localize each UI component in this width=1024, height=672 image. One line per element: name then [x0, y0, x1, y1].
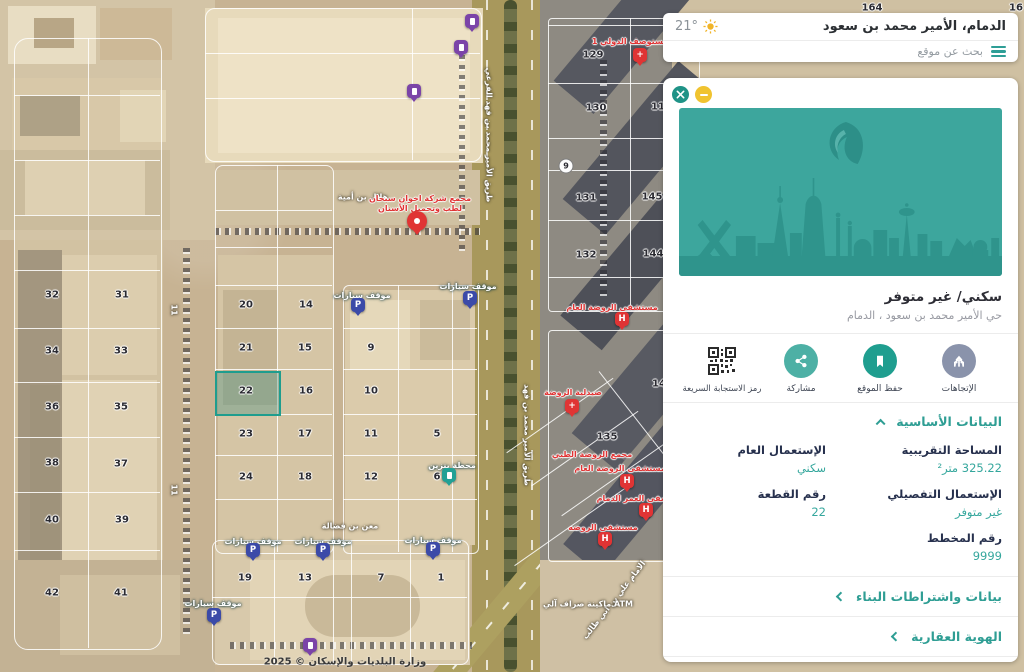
map-copyright: وزارة البلديات والإسكان © 2025	[264, 657, 427, 668]
save-location-button[interactable]: حفظ الموقع	[845, 344, 915, 394]
parcel-number[interactable]: 39	[115, 515, 129, 526]
action-label: رمز الاستجابة السريعة	[683, 384, 762, 394]
field-label: رقم المخطط	[826, 531, 1002, 545]
section-title: الهوية العقارية	[911, 629, 1002, 644]
parcel-number[interactable]: 129	[583, 50, 604, 61]
parcel-grid-line	[14, 382, 160, 383]
field-label: الإستعمال التفصيلي	[826, 487, 1002, 501]
field-1: الإستعمال العامسكني	[679, 443, 826, 475]
highway-median-trees	[504, 0, 517, 672]
menu-icon[interactable]	[991, 44, 1006, 60]
parcel-grid-line	[333, 540, 334, 663]
minimize-button[interactable]	[695, 86, 712, 103]
parcel-number[interactable]: 145	[642, 192, 663, 203]
parcel-number[interactable]: 40	[45, 515, 59, 526]
parcel-grid-line	[215, 285, 332, 286]
parcel-number[interactable]: 1	[438, 573, 445, 584]
parcel-grid-line	[212, 597, 467, 598]
purple-pin[interactable]	[465, 14, 479, 28]
qr-code-icon	[705, 344, 739, 378]
field-value: سكني	[679, 461, 826, 475]
basic-data-section-header[interactable]: البيانات الأساسية	[663, 403, 1018, 433]
parcel-detail-panel: سكني/ غير متوفر حي الأمير محمد بن سعود ،…	[663, 78, 1018, 662]
parcel-number[interactable]: 12	[364, 472, 378, 483]
parking-pin[interactable]: P	[246, 543, 260, 557]
parcel-number[interactable]: 10	[364, 386, 378, 397]
parcel-number[interactable]: 31	[115, 290, 129, 301]
section-row-1[interactable]: الهوية العقارية	[663, 617, 1018, 656]
parcel-subtitle: حي الأمير محمد بن سعود ، الدمام	[679, 309, 1002, 322]
parcel-number[interactable]: 35	[114, 402, 128, 413]
action-label: الإتجاهات	[942, 384, 977, 394]
parcel-grid-line	[398, 285, 399, 552]
parcel-grid-line	[215, 499, 332, 500]
parcel-number[interactable]: 6	[434, 472, 441, 483]
parked-cars	[183, 248, 190, 638]
parcel-number[interactable]: 19	[238, 573, 252, 584]
parcel-number[interactable]: 9	[559, 159, 574, 174]
parcel-grid-line	[452, 285, 453, 552]
parcel-number[interactable]: 14	[299, 300, 313, 311]
action-label: مشاركة	[786, 384, 815, 394]
weather-widget: 21°	[675, 19, 718, 34]
hospital-pin[interactable]: H	[615, 312, 629, 326]
street-label: 11	[170, 304, 179, 315]
parcel-number[interactable]: 23	[239, 429, 253, 440]
field-4: رقم المخطط9999	[826, 531, 1002, 563]
parcel-number[interactable]: 15	[298, 343, 312, 354]
parcel-number[interactable]: 11	[364, 429, 378, 440]
app-screen: 1641612913011913114513214414135323134333…	[0, 0, 1024, 672]
parcel-grid-line	[343, 414, 477, 415]
parcel-grid-line	[215, 210, 332, 211]
parcel-number[interactable]: 42	[45, 588, 59, 599]
parcel-grid-line	[215, 328, 332, 329]
temperature-label: 21°	[675, 19, 698, 34]
parcel-grid-line	[14, 215, 160, 216]
parking-pin[interactable]: P	[426, 542, 440, 556]
parcel-grid-line	[14, 437, 160, 438]
poi-label: المستوصف الدولي 1	[592, 37, 674, 47]
close-button[interactable]	[672, 86, 689, 103]
pharmacy-pin[interactable]: +	[565, 399, 579, 413]
parcel-number[interactable]: 20	[239, 300, 253, 311]
poi-label: صيدلية الروضة	[544, 388, 602, 398]
parcel-number[interactable]: 32	[45, 290, 59, 301]
parcel-number[interactable]: 9	[368, 343, 375, 354]
chevron-left-icon	[835, 591, 845, 601]
chevron-up-icon	[876, 418, 886, 428]
parking-pin[interactable]: P	[316, 543, 330, 557]
close-icon	[676, 90, 685, 99]
parcel-grid-line	[215, 247, 332, 248]
purple-pin[interactable]	[454, 40, 468, 54]
purple-pin[interactable]	[407, 84, 421, 98]
qr-code-button[interactable]: رمز الاستجابة السريعة	[687, 344, 757, 394]
search-input[interactable]: بحث عن موقع	[917, 45, 983, 58]
street-label: معن بن فضالة	[322, 522, 378, 531]
parcel-number[interactable]: 132	[576, 250, 597, 261]
gas-pin[interactable]	[442, 468, 456, 482]
parcel-grid-line	[205, 98, 480, 99]
directions-button[interactable]: الإتجاهات	[924, 344, 994, 394]
parking-pin[interactable]: P	[351, 298, 365, 312]
parcel-grid-line	[343, 369, 477, 370]
parcel-grid-line	[14, 95, 160, 96]
field-label: المساحة التقريبية	[826, 443, 1002, 457]
parcel-grid-line	[205, 53, 480, 54]
hospital-pin[interactable]: H	[598, 532, 612, 546]
poi-label: مستشفى الروضة العام	[566, 303, 657, 313]
collapsed-sections: بيانات واشتراطات البناءالهوية العقاريةأق…	[663, 577, 1018, 662]
parcel-block-outline	[215, 165, 334, 554]
action-label: حفظ الموقع	[857, 384, 903, 394]
parcel-title: سكني/ غير متوفر	[679, 289, 1002, 305]
parcel-grid-line	[410, 540, 411, 663]
parcel-grid-line	[14, 492, 160, 493]
sun-icon	[703, 19, 718, 34]
parcel-grid-line	[14, 328, 160, 329]
location-title: الدمام، الأمير محمد بن سعود	[823, 19, 1006, 34]
parcel-number[interactable]: 38	[45, 458, 59, 469]
parcel-number[interactable]: 37	[114, 459, 128, 470]
parcel-number[interactable]: 131	[576, 193, 597, 204]
parcel-grid-line	[277, 165, 278, 552]
parcel-number[interactable]: 16	[299, 386, 313, 397]
parcel-number[interactable]: 41	[114, 588, 128, 599]
search-card: 21° الدمام، الأمير محمد بن سعود بحث عن م…	[663, 13, 1018, 62]
field-value: 9999	[826, 549, 1002, 563]
parcel-block-outline	[343, 285, 479, 554]
parcel-grid-line	[88, 38, 89, 648]
purple-pin[interactable]	[303, 638, 317, 652]
section-row-0[interactable]: بيانات واشتراطات البناء	[663, 577, 1018, 616]
parcel-grid-line	[343, 455, 477, 456]
hospital-pin[interactable]: H	[620, 474, 634, 488]
parcel-number[interactable]: 33	[114, 346, 128, 357]
parcel-number[interactable]: 24	[239, 472, 253, 483]
field-label: رقم القطعة	[679, 487, 826, 501]
parcel-number[interactable]: 17	[298, 429, 312, 440]
dental-pin[interactable]	[407, 211, 427, 231]
field-value: غير متوفر	[826, 505, 1002, 519]
parcel-number[interactable]: 130	[586, 103, 607, 114]
field-3: رقم القطعة22	[679, 487, 826, 519]
field-value: 325.22 متر²	[826, 461, 1002, 475]
hospital-pin[interactable]: H	[639, 503, 653, 517]
parcel-grid-line	[215, 455, 332, 456]
parcel-number[interactable]: 7	[378, 573, 385, 584]
bookmark-icon	[863, 344, 897, 378]
action-bar: الإتجاهات حفظ الموقع مشاركة	[663, 334, 1018, 400]
parcel-block-outline	[205, 8, 482, 162]
search-bar[interactable]: بحث عن موقع	[663, 41, 1018, 62]
street-label: طريق الأمير محمد بن فهد	[523, 384, 532, 486]
poi-label: مستشفى الروضة العام	[574, 464, 665, 474]
field-2: الإستعمال التفصيليغير متوفر	[826, 487, 1002, 519]
chevron-left-icon	[890, 631, 900, 641]
section-title: بيانات واشتراطات البناء	[856, 589, 1002, 604]
parcel-number[interactable]: 164	[862, 3, 883, 14]
map-building	[540, 560, 680, 672]
field-0: المساحة التقريبية325.22 متر²	[826, 443, 1002, 475]
parcel-grid-line	[351, 540, 352, 663]
parcel-number[interactable]: 21	[239, 343, 253, 354]
parcel-grid-line	[14, 160, 160, 161]
parcel-number[interactable]: 16	[1009, 3, 1023, 14]
parcel-grid-line	[343, 328, 477, 329]
share-button[interactable]: مشاركة	[766, 344, 836, 394]
parcel-grid-line	[274, 540, 275, 663]
parking-pin[interactable]: P	[207, 608, 221, 622]
minus-icon	[700, 94, 708, 96]
parcel-number[interactable]: 18	[298, 472, 312, 483]
parcel-number[interactable]: 5	[434, 429, 441, 440]
parcel-grid-line	[14, 270, 160, 271]
skyline-illustration	[679, 108, 1002, 276]
section-row-2[interactable]: أقرب خدمة	[663, 657, 1018, 662]
share-icon	[784, 344, 818, 378]
street-label: 11	[170, 484, 179, 495]
parcel-grid-line	[343, 499, 477, 500]
section-title: البيانات الأساسية	[896, 414, 1002, 429]
parcel-number[interactable]: 13	[298, 573, 312, 584]
parcel-number[interactable]: 144	[643, 249, 664, 260]
directions-icon	[942, 344, 976, 378]
parcel-fields: المساحة التقريبية325.22 متر²الإستعمال ال…	[663, 433, 1018, 565]
parcel-number[interactable]: 135	[597, 432, 618, 443]
street-label: ماكينة صراف آلي ATM	[543, 600, 633, 609]
street-label: طريق الأمير محمد بن فهد الفرعي	[485, 68, 494, 203]
parcel-number[interactable]: 34	[45, 346, 59, 357]
field-label: الإستعمال العام	[679, 443, 826, 457]
field-value: 22	[679, 505, 826, 519]
clinic-pin[interactable]: +	[633, 48, 647, 62]
parcel-grid-line	[14, 550, 160, 551]
parcel-number[interactable]: 36	[45, 402, 59, 413]
city-skyline-graphic	[679, 108, 1002, 276]
parking-pin[interactable]: P	[463, 291, 477, 305]
parcel-grid-line	[630, 18, 631, 310]
poi-label: مجمع الروضة الطبي	[552, 450, 632, 460]
parcel-number-selected[interactable]: 22	[239, 386, 253, 397]
